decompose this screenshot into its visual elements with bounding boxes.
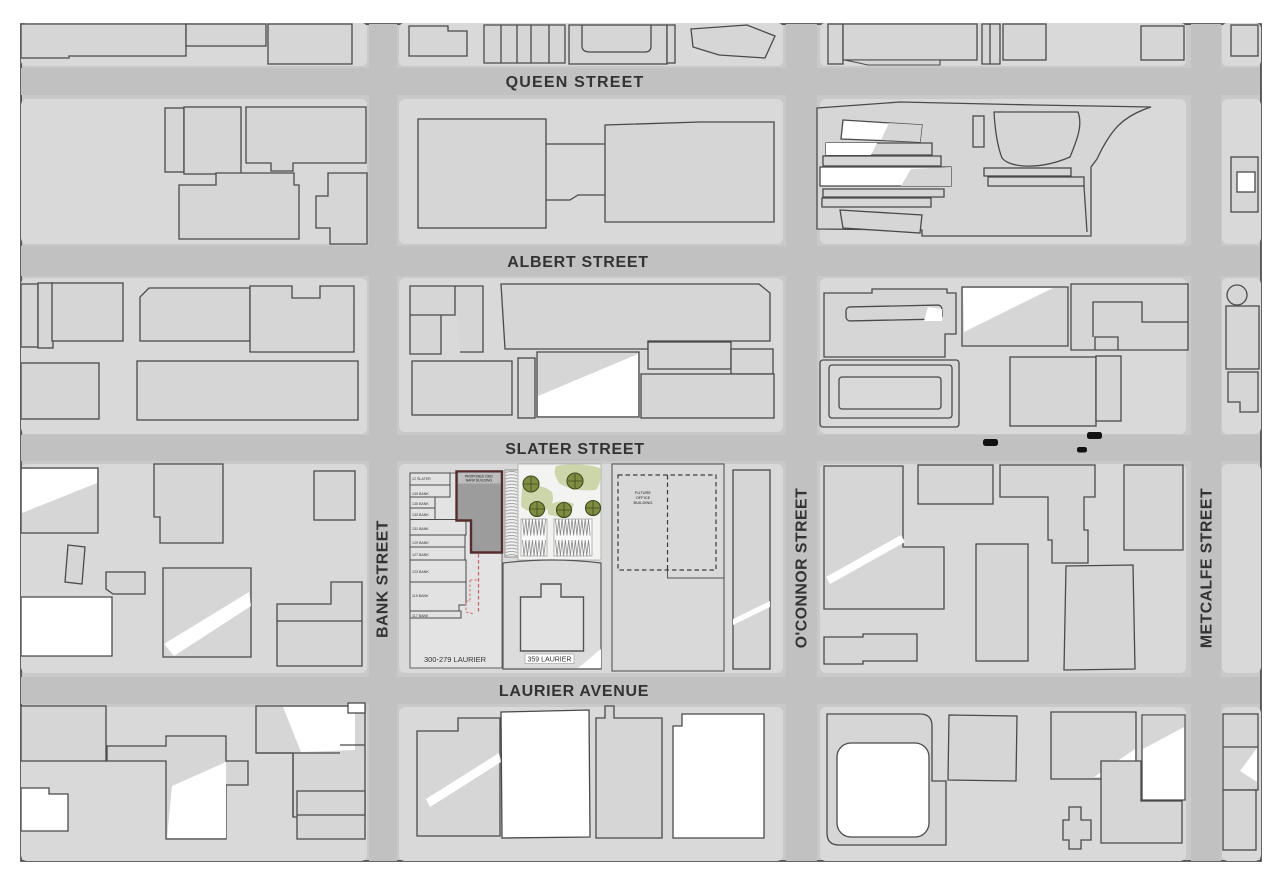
svg-text:139 BANK: 139 BANK	[412, 492, 429, 496]
svg-text:ALBERT STREET: ALBERT STREET	[507, 254, 649, 271]
svg-text:BUILDING: BUILDING	[634, 500, 653, 505]
svg-text:300-279 LAURIER: 300-279 LAURIER	[424, 655, 487, 664]
svg-text:O'CONNOR STREET: O'CONNOR STREET	[794, 488, 811, 648]
svg-text:BANK STREET: BANK STREET	[375, 520, 392, 638]
svg-text:119 BANK: 119 BANK	[412, 594, 429, 598]
svg-text:METCALFE STREET: METCALFE STREET	[1199, 488, 1216, 648]
svg-text:135 BANK: 135 BANK	[412, 502, 429, 506]
svg-text:123 BANK: 123 BANK	[412, 570, 429, 574]
svg-text:359 LAURIER: 359 LAURIER	[528, 657, 572, 664]
svg-text:117 BANK: 117 BANK	[412, 614, 429, 618]
svg-text:131 BANK: 131 BANK	[412, 527, 429, 531]
svg-text:LAURIER AVENUE: LAURIER AVENUE	[499, 683, 649, 700]
svg-text:129 BANK: 129 BANK	[412, 541, 429, 545]
svg-text:127 BANK: 127 BANK	[412, 553, 429, 557]
svg-text:SLATER STREET: SLATER STREET	[505, 441, 644, 458]
svg-text:QUEEN STREET: QUEEN STREET	[506, 74, 645, 91]
svg-text:12 SLATER: 12 SLATER	[412, 477, 431, 481]
svg-text:BANK BUILDING: BANK BUILDING	[466, 479, 493, 483]
svg-text:133 BANK: 133 BANK	[412, 513, 429, 517]
